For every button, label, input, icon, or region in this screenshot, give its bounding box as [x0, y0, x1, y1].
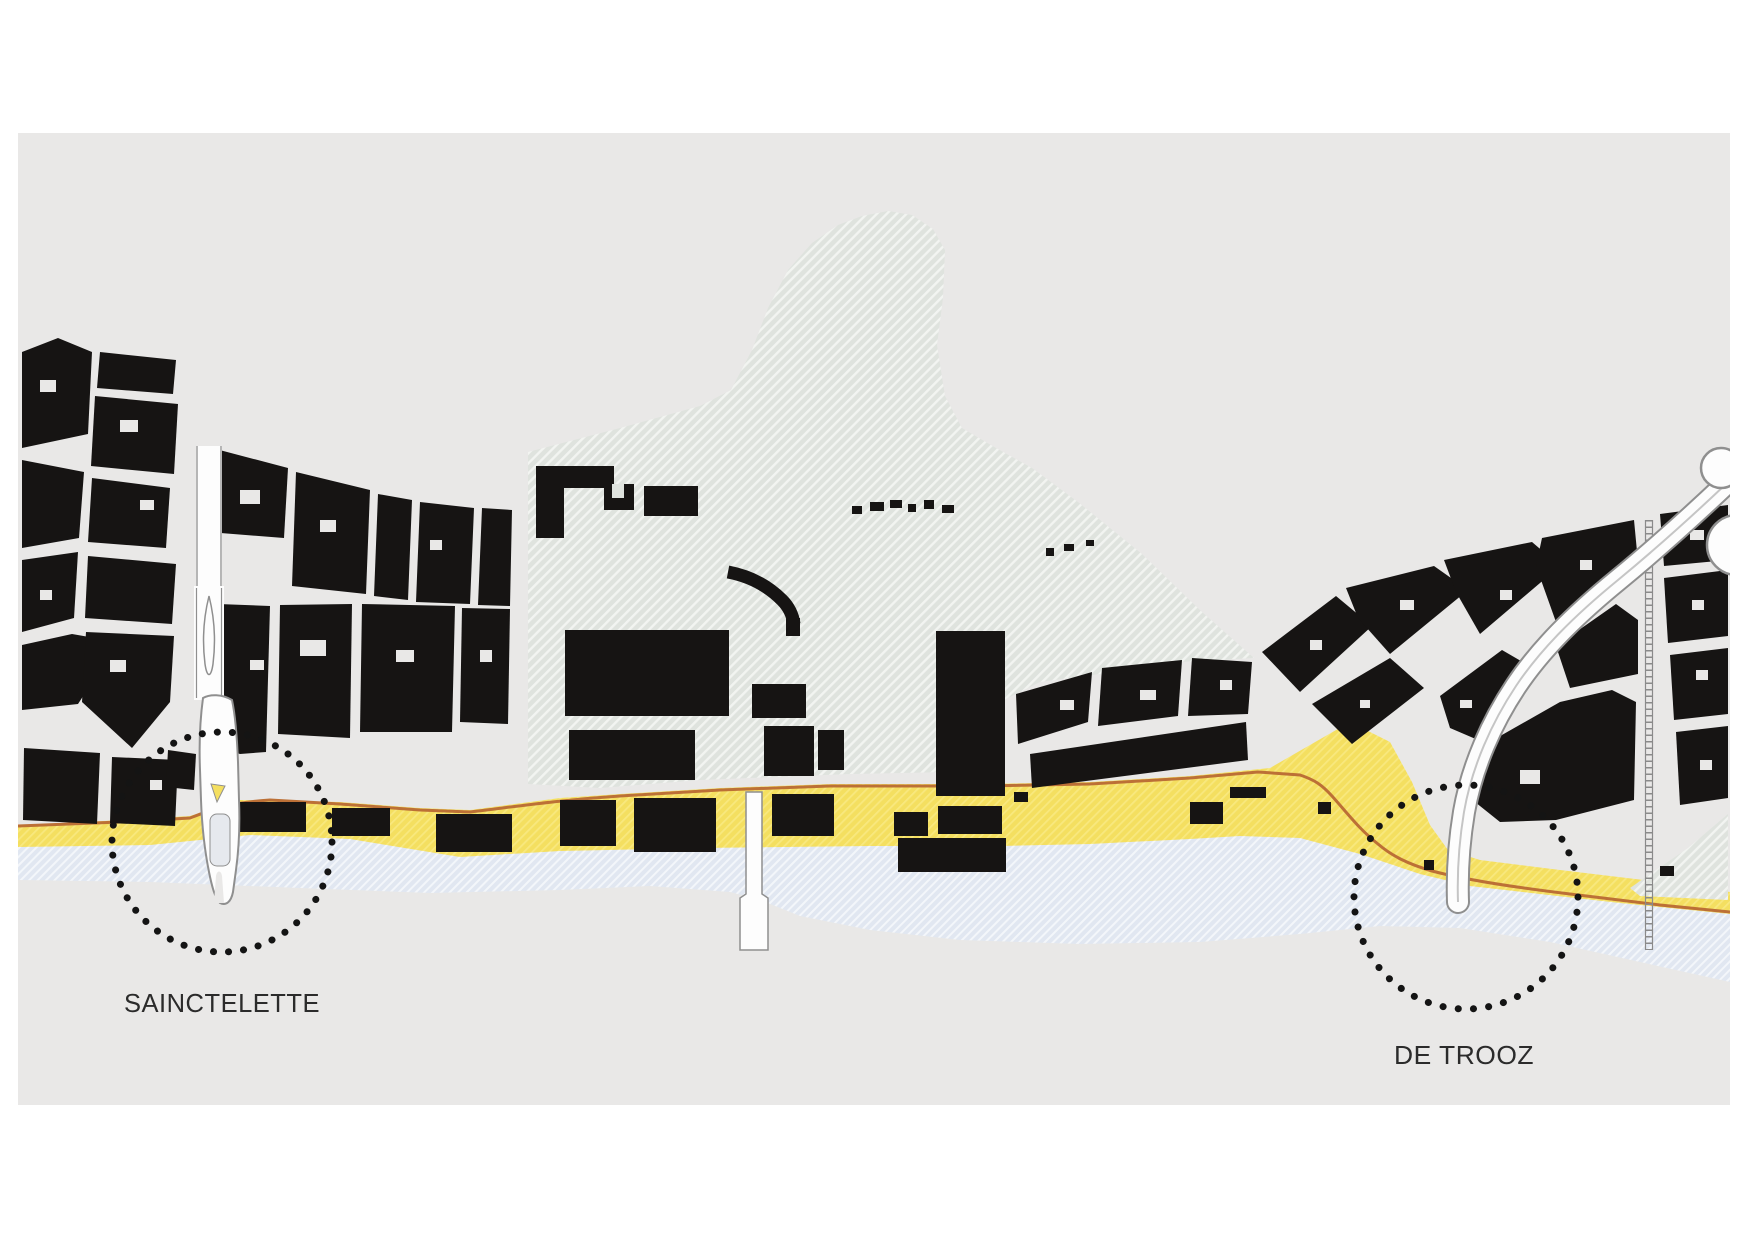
map-page: SAINCTELETTE DE TROOZ: [0, 0, 1754, 1241]
label-sainctelette: SAINCTELETTE: [124, 988, 320, 1018]
map-canvas: SAINCTELETTE DE TROOZ: [0, 0, 1754, 1241]
label-de-trooz: DE TROOZ: [1394, 1040, 1534, 1070]
